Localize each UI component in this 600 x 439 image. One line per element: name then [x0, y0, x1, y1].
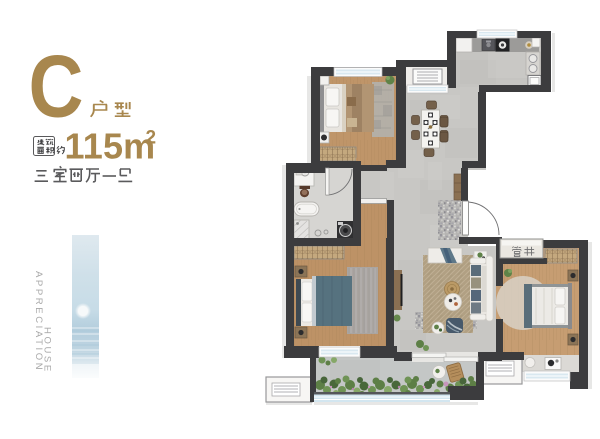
svg-text:115m: 115m	[65, 126, 156, 167]
svg-text:HOUSE: HOUSE	[42, 327, 53, 374]
svg-text:C: C	[29, 38, 84, 135]
svg-text:2: 2	[146, 128, 157, 149]
